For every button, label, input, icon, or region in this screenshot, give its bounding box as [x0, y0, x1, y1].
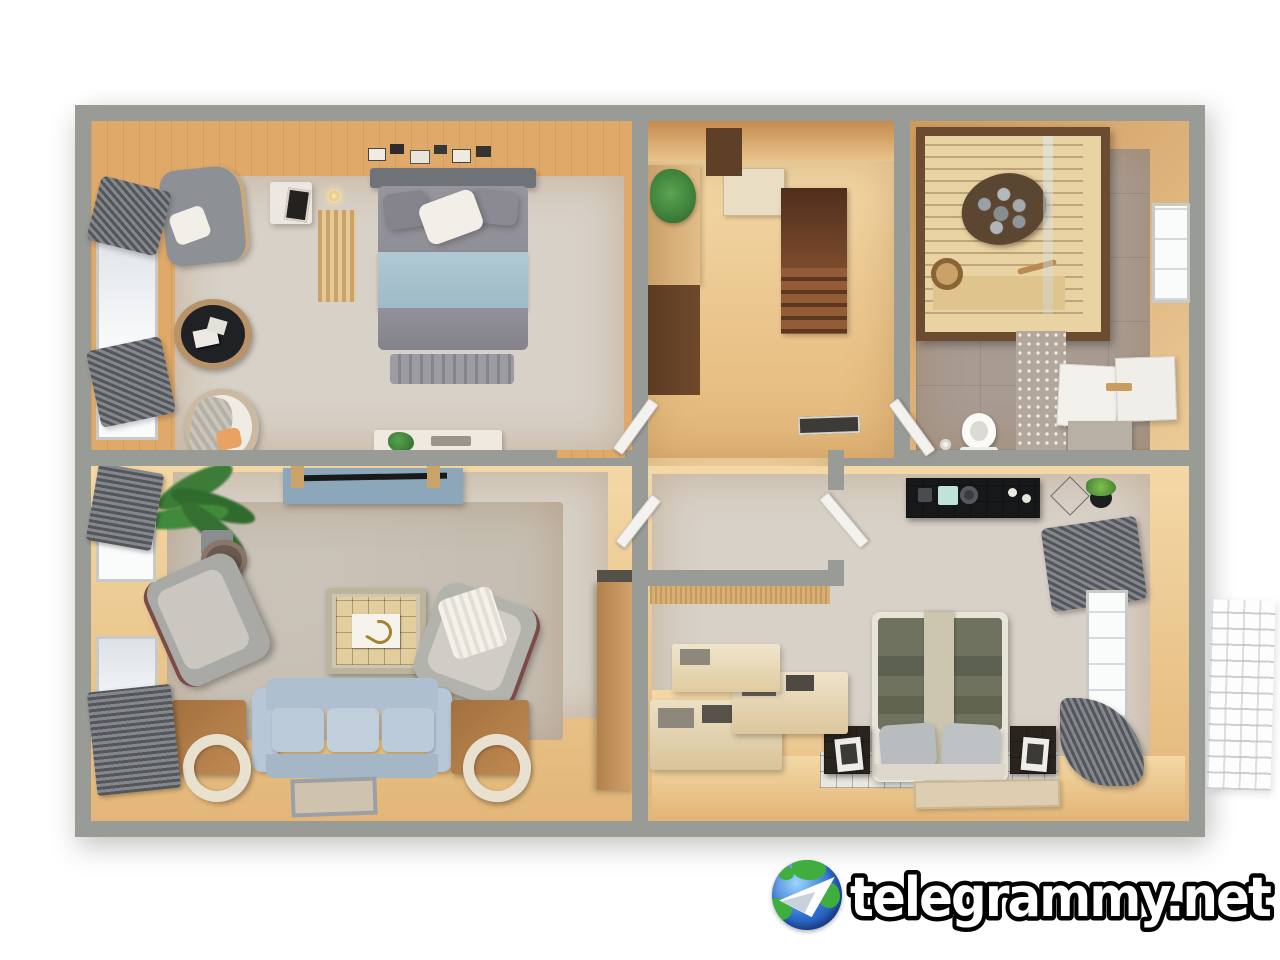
- nightstand-picture-frame: [284, 188, 311, 223]
- wall-bedroom-living-left: [75, 450, 557, 466]
- pendant-lamp: [329, 191, 339, 201]
- sofa-cushion-1: [272, 708, 324, 752]
- sofa-cushion-3: [382, 708, 434, 752]
- bath-wood-tray: [1106, 383, 1132, 391]
- sofa-cushion-2: [327, 708, 379, 752]
- slatted-panel: [318, 210, 356, 302]
- sauna: [916, 127, 1110, 341]
- bed-bench: [390, 354, 514, 384]
- radiator-bottom: [87, 684, 181, 796]
- vanity-items: [918, 488, 932, 502]
- vanity-mint-box: [938, 486, 958, 505]
- hall-doormat: [798, 415, 861, 435]
- telegram-globe-paper-plane-icon: [772, 860, 842, 930]
- wall-pocket-bottom: [648, 570, 844, 586]
- coffee-table: [326, 588, 426, 674]
- wall-bedroom-hall-upper: [632, 121, 648, 385]
- wall-bedroom-living-right: [625, 450, 648, 466]
- vanity-speaker: [960, 486, 978, 504]
- watermark: telegrammy.net: [772, 856, 1278, 940]
- living-wardrobe: [597, 582, 635, 790]
- wall-living-bedroom2-lower: [632, 555, 648, 821]
- watermark-text-svg: telegrammy.net: [846, 856, 1278, 940]
- bedroom-second: [648, 466, 1189, 821]
- headboard: [370, 168, 536, 188]
- floor-mat: [290, 777, 377, 818]
- duvet-fold: [378, 308, 528, 350]
- round-coffee-table: [174, 299, 252, 369]
- wall-art-gallery: [368, 144, 508, 170]
- bath-cabinet-1: [1056, 363, 1119, 428]
- sauna-glass-wall: [1043, 136, 1053, 314]
- double-bed-2: [872, 612, 1008, 782]
- bathroom: [910, 121, 1189, 458]
- bathroom-window: [1152, 203, 1190, 303]
- desk-plant: [388, 432, 414, 452]
- wall-bathroom-bedroom2: [894, 450, 1205, 466]
- bed2-pillow-right: [941, 723, 1001, 770]
- hall-upper-cabinet: [706, 128, 742, 176]
- blanket-blue: [378, 252, 528, 310]
- toilet-paper-roll: [940, 439, 951, 450]
- stairs-upper-ramp: [781, 188, 847, 268]
- bed2-pillow-left: [879, 722, 938, 770]
- cube-frame-right: [1021, 737, 1050, 772]
- exterior-roof-trellis: [1207, 599, 1276, 791]
- dresser-chest-3: [672, 644, 780, 692]
- cabinet-plant: [650, 169, 696, 223]
- desk-items: [431, 436, 471, 446]
- floor-plan-render: telegrammy.net: [0, 0, 1280, 960]
- double-bed: [378, 168, 528, 409]
- living-room: [91, 466, 632, 821]
- hall-cabinet: [648, 165, 700, 409]
- stairwell: [781, 188, 847, 334]
- tv-bracket-right: [427, 466, 440, 488]
- watermark-text: telegrammy.net: [850, 866, 1271, 929]
- bed-bench-tray: [914, 779, 1060, 810]
- sauna-bucket: [931, 258, 963, 290]
- cube-frame-left: [834, 737, 863, 773]
- vanity-dot-1: [1008, 488, 1017, 497]
- vanity-dot-2: [1022, 494, 1031, 503]
- curtain-bottom: [86, 336, 177, 428]
- hall-wood-border: [648, 121, 894, 165]
- sofa: [252, 678, 452, 780]
- hallway: [648, 121, 894, 458]
- stairs-treads: [781, 268, 847, 334]
- radiator-top: [86, 463, 165, 551]
- bedroom-main: [91, 121, 632, 458]
- wall-living-bedroom2-upper: [632, 466, 648, 490]
- armchair-corner: [158, 164, 248, 268]
- tv-bracket-left: [291, 466, 304, 488]
- corner-plant: [1072, 478, 1124, 518]
- wall-pocket-right: [828, 450, 844, 490]
- wall-hall-bathroom-upper: [894, 121, 910, 391]
